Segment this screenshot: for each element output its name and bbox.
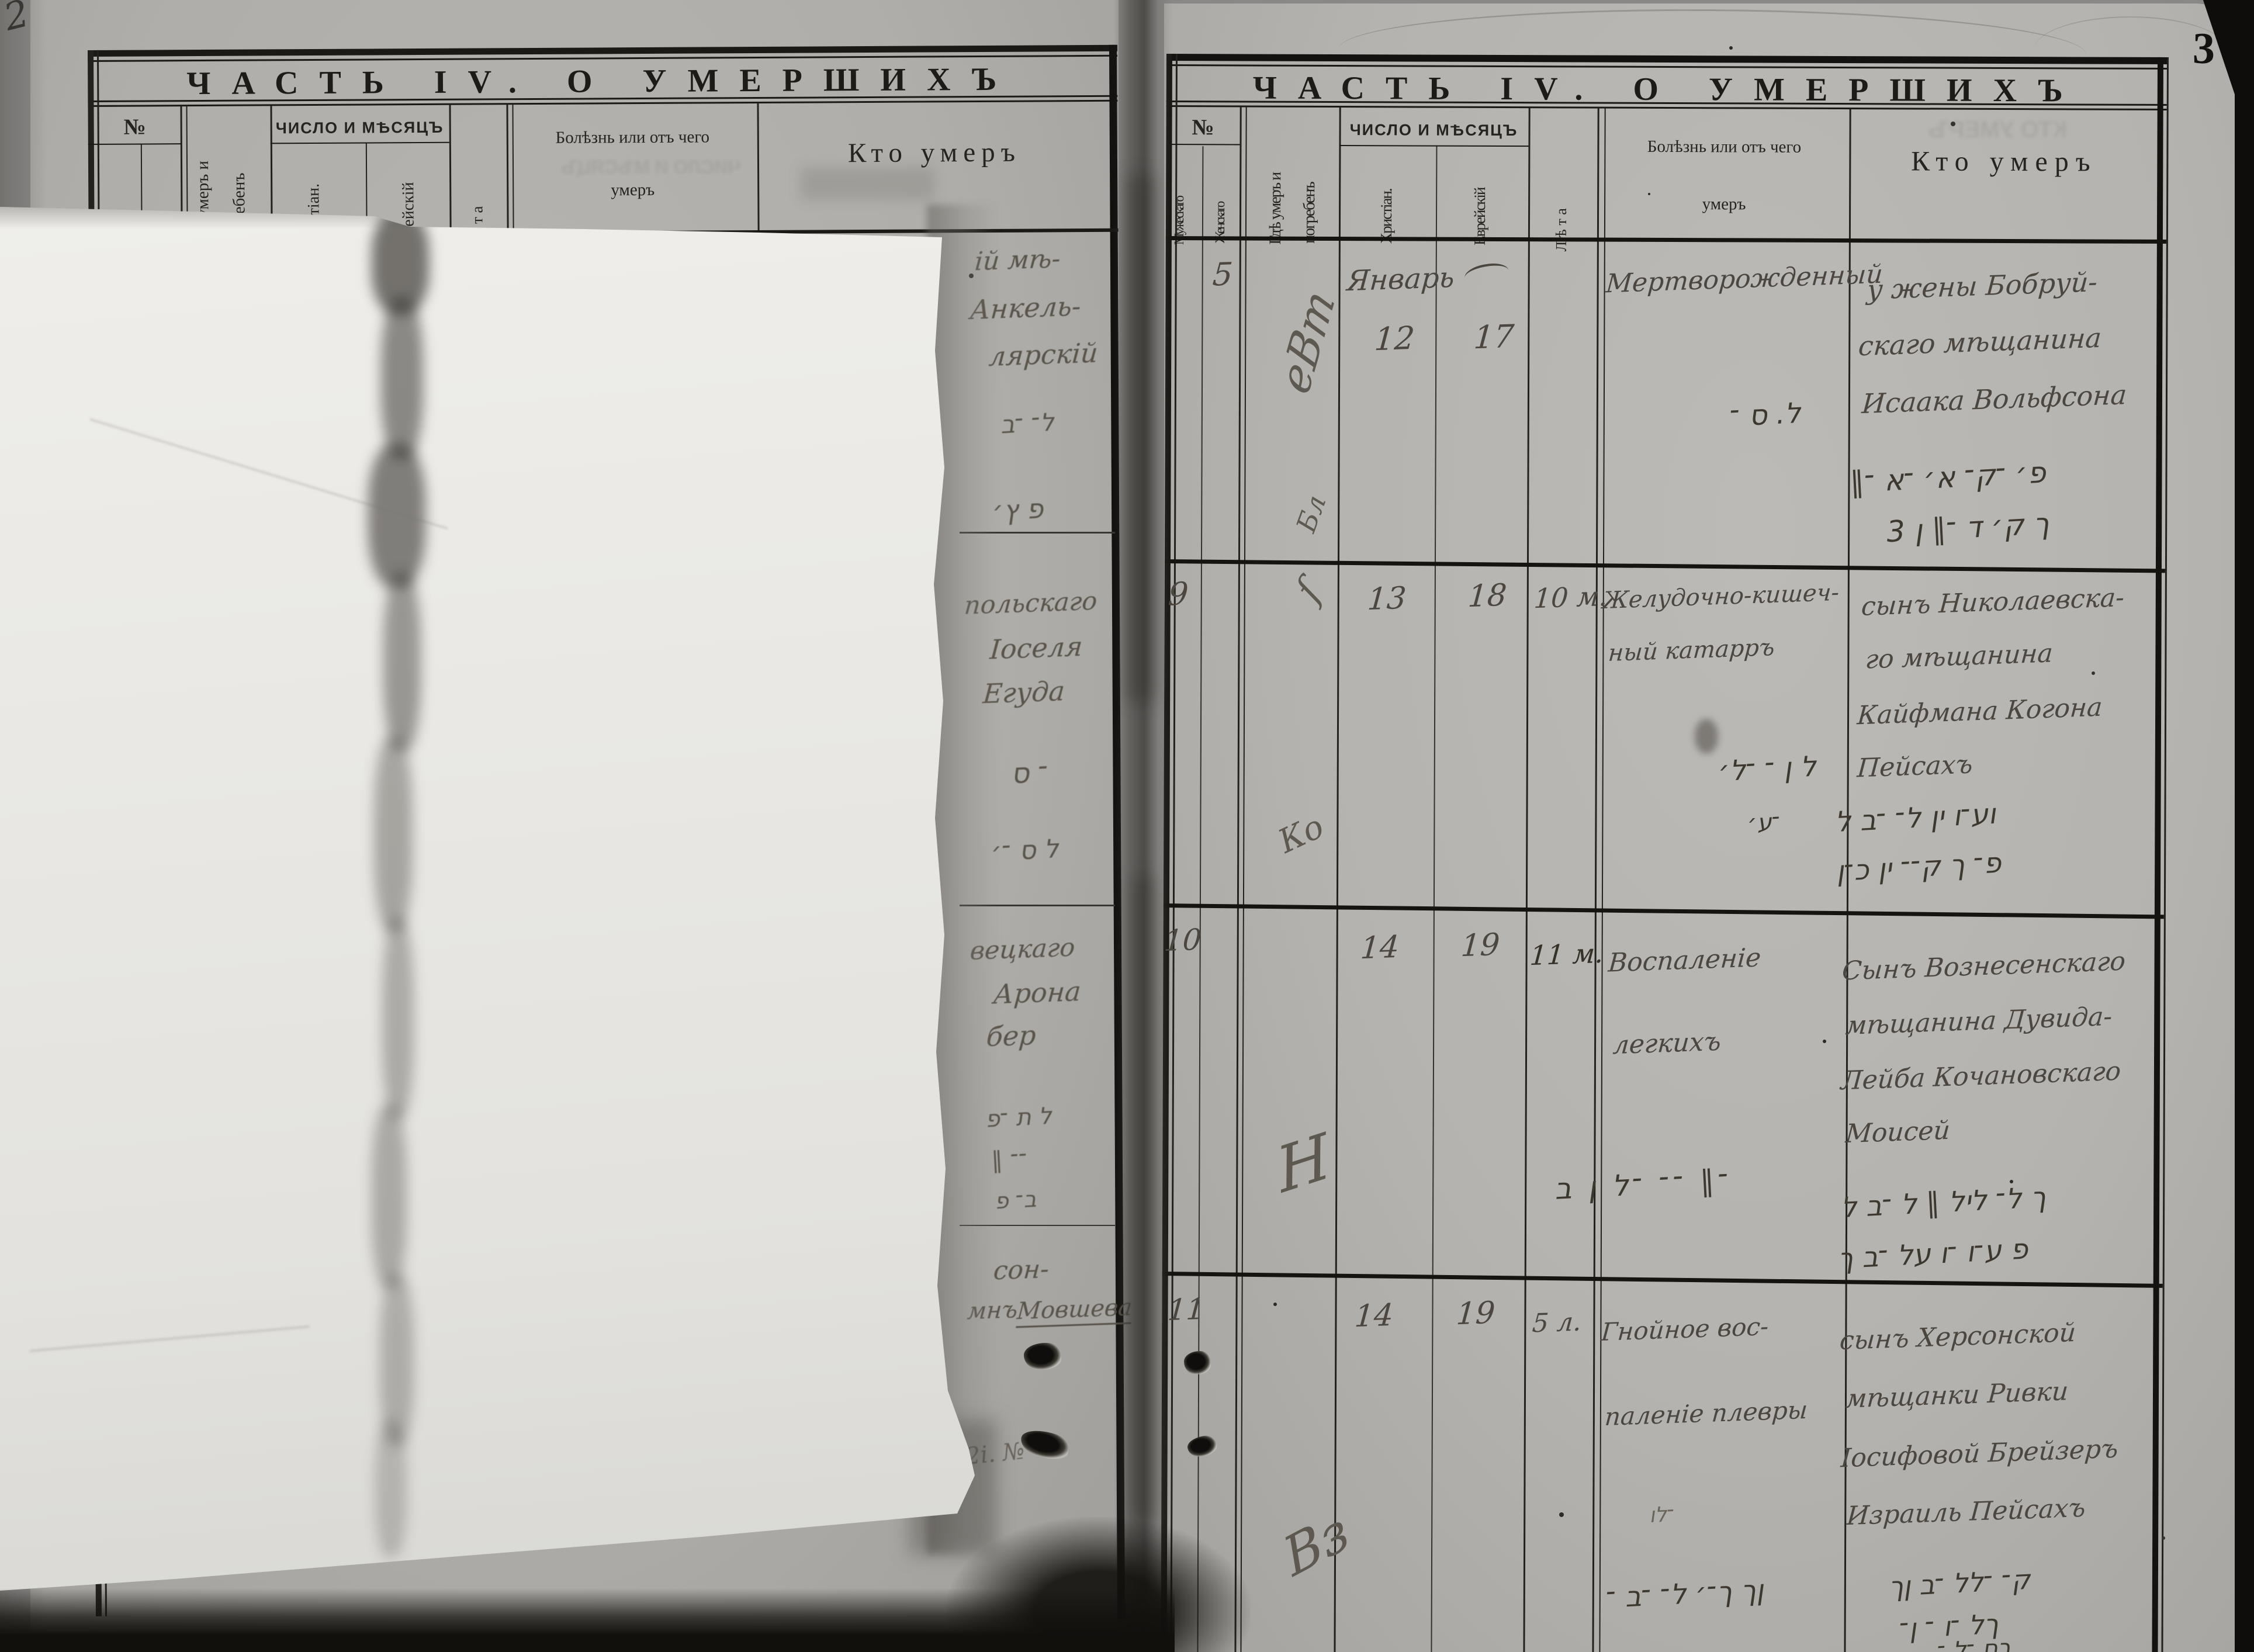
cause-line: легкихъ xyxy=(1612,1027,1722,1061)
gutter-bottom-tear xyxy=(947,1517,1251,1652)
right-col-illness-1: Болѣзнь или отъ чего xyxy=(1599,137,1849,157)
bleedthrough-ghost: ЧИСЛО И МѢСЯЦЪ xyxy=(561,157,741,178)
page-number: 3 xyxy=(2192,23,2215,75)
cause-line: Гнойное вос- xyxy=(1600,1312,1770,1346)
hebrew-script-line: ב־ פ xyxy=(994,1186,1037,1214)
who-line: Пейсахъ xyxy=(1856,749,1973,783)
date-christian-day: 14 xyxy=(1359,930,1400,966)
row-divider xyxy=(1164,903,2164,919)
fragment-line: лярскій xyxy=(988,337,1099,373)
right-col-age: Л ѣ т а xyxy=(1553,137,1571,251)
right-col-christian: Христіан. xyxy=(1377,146,1396,244)
right-col-male: Мужескаго xyxy=(1172,143,1187,245)
date-christian-month: Январь xyxy=(1346,261,1456,298)
right-col-where-2: погребенъ xyxy=(1300,121,1320,244)
scanned-register-spread: ЧАСТЬ IV. О УМЕРШИХЪ № Мужескаго Женскаг… xyxy=(0,0,2254,1652)
ink-smudge xyxy=(1695,719,1718,754)
sheet-streak-stain xyxy=(382,917,414,1119)
date-jewish-day: 19 xyxy=(1455,1296,1496,1332)
worm-hole xyxy=(1184,1351,1211,1374)
date-christian-day: 12 xyxy=(1373,320,1416,358)
hebrew-script-line: ל־ ־ב xyxy=(1000,408,1055,439)
gutter-stain xyxy=(1133,877,1154,1519)
entry-number: 5 xyxy=(1211,255,1234,293)
row-divider xyxy=(1162,1272,2163,1288)
row-divider xyxy=(1165,559,2165,573)
sheet-streak-stain xyxy=(383,573,421,751)
right-col-no: № xyxy=(1166,115,1239,140)
fragment-line: Арона xyxy=(992,975,1082,1010)
hebrew-script-line: ל ן ־ ־ל׳ xyxy=(1718,750,1817,788)
scan-right-dark-edge xyxy=(2235,0,2254,1652)
cause-line: Воспаленіе xyxy=(1607,943,1762,978)
sheet-streak-stain xyxy=(372,1104,407,1289)
sheet-crease xyxy=(30,1326,309,1352)
hebrew-script-line: פ ץ׳ xyxy=(992,493,1044,527)
hebrew-script-line: ךם ־ל ־ xyxy=(1937,1634,2011,1652)
hebrew-script-line: ל ס ־׳ xyxy=(991,834,1060,867)
date-jewish-day: 18 xyxy=(1467,578,1508,614)
sheet-streak-stain xyxy=(374,736,413,932)
hebrew-script-mark: ־לו xyxy=(1649,1502,1675,1528)
dust-specks xyxy=(1648,193,1650,195)
hebrew-script-line: ל. ס ־ xyxy=(1729,397,1802,433)
bleedthrough-smudge xyxy=(801,167,935,200)
entry-number: 11 xyxy=(1166,1292,1206,1327)
white-overlay-sheet xyxy=(0,199,988,1601)
fragment-line: Іоселя xyxy=(989,631,1083,666)
right-col-illness-2: умеръ xyxy=(1599,195,1849,214)
sheet-streak-stain xyxy=(368,444,425,587)
date-jewish-day: 19 xyxy=(1460,927,1501,964)
who-line: Моисей xyxy=(1844,1116,1951,1149)
fragment-line: сон- xyxy=(992,1254,1050,1286)
right-col-date-group: ЧИСЛО И МѢСЯЦЪ xyxy=(1339,121,1529,140)
age: 5 л. xyxy=(1531,1307,1583,1338)
age: 10 м. xyxy=(1533,580,1609,615)
right-col-where-1: Гдѣ умеръ и xyxy=(1266,115,1286,245)
hebrew-script-line: ־ע׳ xyxy=(1747,809,1781,837)
date-christian-day: 14 xyxy=(1353,1298,1394,1334)
date-christian-day: 13 xyxy=(1366,581,1407,617)
sheet-streak-stain xyxy=(381,298,423,459)
right-col-who: Кто умеръ xyxy=(1851,145,2157,178)
bleedthrough-ghost: КТО УМЕРЪ xyxy=(1928,117,2067,143)
age: 11 м. xyxy=(1529,937,1605,972)
worm-hole xyxy=(1024,1343,1061,1370)
gutter-stain xyxy=(1128,175,1154,701)
right-col-jewish: Еврейскій xyxy=(1471,145,1490,245)
right-col-female: Женскаго xyxy=(1213,145,1228,243)
hebrew-script-line: ־ ס xyxy=(1010,756,1050,790)
sheet-streak-stain xyxy=(375,1420,407,1557)
date-jewish-day: 17 xyxy=(1473,318,1515,356)
